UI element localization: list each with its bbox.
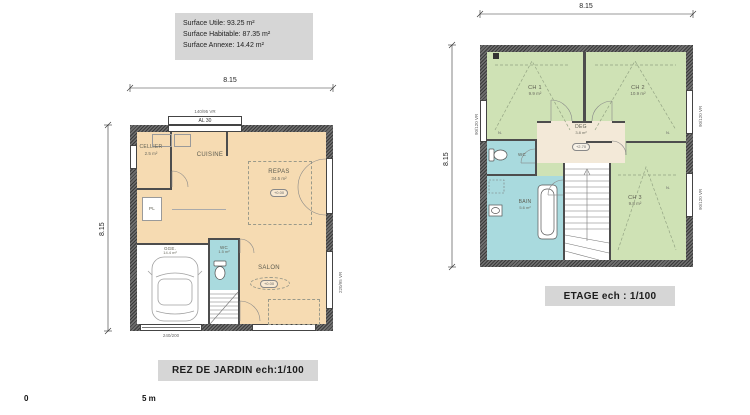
wall-deg-top-1 xyxy=(537,121,551,123)
wc-gf-area: 1.5 m² xyxy=(210,250,238,255)
garage-door-line xyxy=(142,327,200,328)
upper-floor-plan: 90/120 VR 90/120 VR 90/120 VR xyxy=(480,45,693,267)
salon-level-badge: +0.00 xyxy=(260,280,278,288)
wall-garage-top xyxy=(137,243,210,245)
room-wc-uf xyxy=(487,141,537,176)
wall-stairs-right xyxy=(609,163,611,260)
wall-stair-right xyxy=(238,238,240,324)
closet-tag-2: N. xyxy=(666,130,670,135)
wall-wc-right xyxy=(535,141,537,176)
legend-line-habitable: Surface Habitable: 87.35 m² xyxy=(183,30,305,41)
repas-name: REPAS xyxy=(250,169,308,176)
floorplan-sheet: Surface Utile: 93.25 m² Surface Habitabl… xyxy=(0,0,750,415)
legend-line-utile: Surface Utile: 93.25 m² xyxy=(183,19,305,30)
ch2-window xyxy=(686,90,693,134)
scale-zero: 0 xyxy=(24,394,28,403)
repas-level-badge: +0.00 xyxy=(270,189,288,197)
bain-area: 5.6 m² xyxy=(508,206,542,211)
lintel-box: AL 30 xyxy=(168,116,242,125)
scale-five: 5 m xyxy=(142,394,156,403)
ch2-window-tag: 90/120 VR xyxy=(698,106,703,127)
uf-title: ETAGE ech : 1/100 xyxy=(545,286,675,306)
wall-deg-top-3 xyxy=(612,121,625,123)
closet-box: PL xyxy=(142,197,162,221)
wall-wc-bain xyxy=(487,174,535,176)
ch1-window xyxy=(480,100,487,142)
wall-deg-top-2 xyxy=(572,121,592,123)
wall-stairs-left xyxy=(563,163,565,260)
ch1-window-tag: 90/120 VR xyxy=(474,114,479,135)
uf-stairwell xyxy=(565,163,609,260)
ch3-window-tag: 90/120 VR xyxy=(698,189,703,210)
bay-spec-tag: 220/95 VR xyxy=(338,272,343,293)
label-salon: SALON +0.00 xyxy=(242,265,296,290)
salon-name: SALON xyxy=(242,265,296,272)
garage-area: 14.4 m² xyxy=(146,251,194,256)
kitchen-counter-line xyxy=(172,209,226,210)
room-garage xyxy=(137,245,210,324)
salon-bay-window xyxy=(326,251,333,309)
label-wc-uf: WC xyxy=(510,152,534,157)
surface-legend: Surface Utile: 93.25 m² Surface Habitabl… xyxy=(175,13,313,60)
cellier-area: 2.5 m² xyxy=(132,151,170,156)
closet-tag-1: N. xyxy=(498,130,502,135)
salon-window xyxy=(252,324,316,331)
label-garage: GGE. 14.4 m² xyxy=(146,246,194,256)
vent-marker xyxy=(493,53,499,59)
repas-french-door xyxy=(326,158,333,214)
gf-stairwell xyxy=(210,290,238,324)
wall-ch1-bottom xyxy=(487,139,537,141)
label-wc-gf: WC 1.5 m² xyxy=(210,245,238,255)
garage-door-tag: 240/200 xyxy=(140,333,202,338)
wall-ch3-top-2 xyxy=(626,141,686,143)
legend-line-annexe: Surface Annexe: 14.42 m² xyxy=(183,41,305,52)
label-deg: DEG 3.8 m² +2.70 xyxy=(558,125,604,154)
ch3-area: 9.8 m² xyxy=(610,201,660,206)
uf-dim-left: 8.15 xyxy=(443,152,450,166)
kitchen-window xyxy=(168,125,242,132)
uf-dim-top: 8.15 xyxy=(570,3,602,10)
gf-dim-left: 8.15 xyxy=(99,222,106,236)
label-ch3: CH 3 9.8 m² xyxy=(610,195,660,206)
closet-label: PL xyxy=(143,206,161,211)
label-bain: BAIN 5.6 m² xyxy=(508,200,542,210)
ground-floor-plan: PL AL 30 140/95 VR 220/95 VR 240/200 xyxy=(130,125,333,331)
gf-dim-top: 8.15 xyxy=(214,77,246,84)
ch1-area: 9.9 m² xyxy=(510,91,560,96)
label-ch1: CH 1 9.9 m² xyxy=(510,85,560,96)
deg-level-badge: +2.70 xyxy=(572,143,590,151)
wall-wc-top xyxy=(208,238,240,240)
window-spec-tag: 140/95 VR xyxy=(168,109,242,114)
label-ch2: CH 2 10.9 m² xyxy=(613,85,663,96)
label-repas: REPAS 34.5 m² +0.00 xyxy=(250,169,308,199)
kitchen-appliance-2 xyxy=(174,134,191,147)
salon-sofa-dashed xyxy=(268,299,320,325)
ch3-window xyxy=(686,173,693,217)
gf-title: REZ DE JARDIN ech:1/100 xyxy=(158,360,318,381)
ch2-area: 10.9 m² xyxy=(613,91,663,96)
room-bain xyxy=(487,176,565,260)
wall-cellier-bottom xyxy=(137,188,172,190)
label-cuisine: CUISINE xyxy=(182,152,238,159)
label-cellier: CELLIER 2.5 m² xyxy=(132,145,170,156)
closet-tag-3: N. xyxy=(666,185,670,190)
wall-ch1-ch2 xyxy=(583,52,586,121)
